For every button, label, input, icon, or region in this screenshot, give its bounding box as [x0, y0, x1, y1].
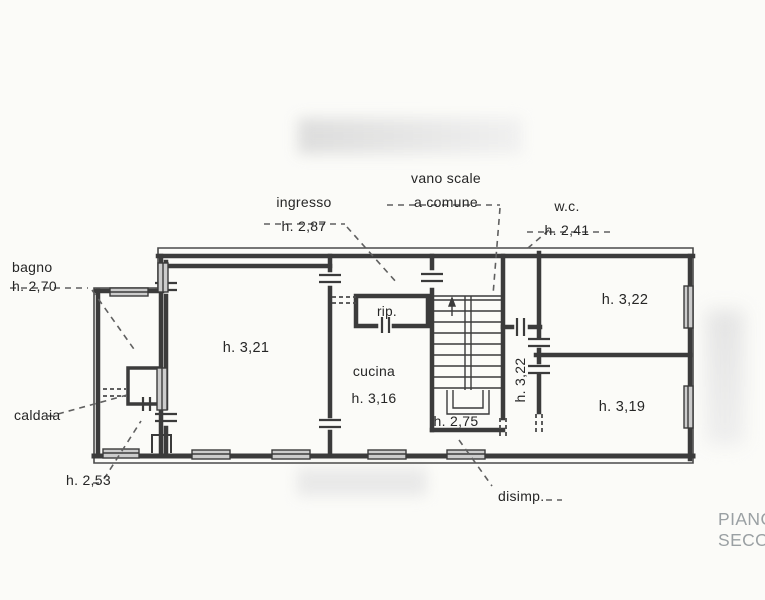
label-h275: h. 2,75 [426, 412, 486, 431]
ingresso-height: h. 2,87 [256, 214, 352, 238]
label-disimp: disimp. [498, 487, 544, 506]
label-room-322: h. 3,22 [580, 291, 670, 310]
walls [94, 253, 693, 459]
room-319-height: h. 3,19 [599, 399, 645, 415]
label-caldaia: caldaia [14, 406, 60, 425]
leader-vano-scale [493, 208, 500, 295]
label-cucina: cucina h. 3,16 [328, 358, 420, 412]
disimpegno-name: disimp. [498, 488, 544, 504]
disimpegno-height: h. 2,75 [434, 413, 479, 429]
bagno-name: bagno [12, 258, 57, 277]
caption-line2: SECONDO [718, 530, 765, 551]
rip-name: rip. [377, 304, 397, 319]
bagno-height: h. 2,70 [12, 277, 57, 296]
label-bagno: bagno h. 2,70 [12, 258, 57, 296]
label-ingresso: ingresso h. 2,87 [256, 190, 352, 238]
vano-scale-subname: a comune [390, 190, 502, 214]
cucina-name: cucina [328, 358, 420, 385]
caldaia-name: caldaia [14, 407, 60, 423]
label-corridor-322: h. 3,22 [511, 349, 527, 411]
label-room-319: h. 3,19 [577, 398, 667, 417]
ingresso-name: ingresso [256, 190, 352, 214]
label-rip: rip. [377, 302, 397, 321]
staircase [434, 296, 501, 414]
stair-arrow-head-icon [449, 298, 455, 306]
corridor-322-height: h. 3,22 [512, 358, 528, 403]
wc-height: h. 2,41 [524, 218, 610, 242]
label-room-321: h. 3,21 [201, 339, 291, 358]
wc-name: w.c. [524, 194, 610, 218]
label-h253: h. 2,53 [66, 471, 111, 490]
room-322-height: h. 3,22 [602, 292, 648, 308]
label-vano-scale: vano scale a comune [390, 166, 502, 214]
label-wc: w.c. h. 2,41 [524, 194, 610, 242]
vano-scale-name: vano scale [390, 166, 502, 190]
h253-height: h. 2,53 [66, 472, 111, 488]
caption-line1: PIANO [718, 509, 765, 530]
room-321-height: h. 3,21 [223, 340, 269, 356]
cucina-height: h. 3,16 [328, 385, 420, 412]
scanned-floor-plan-page: bagno h. 2,70 caldaia h. 2,53 ingresso h… [0, 0, 765, 600]
floor-caption: PIANO SECONDO [718, 509, 765, 551]
